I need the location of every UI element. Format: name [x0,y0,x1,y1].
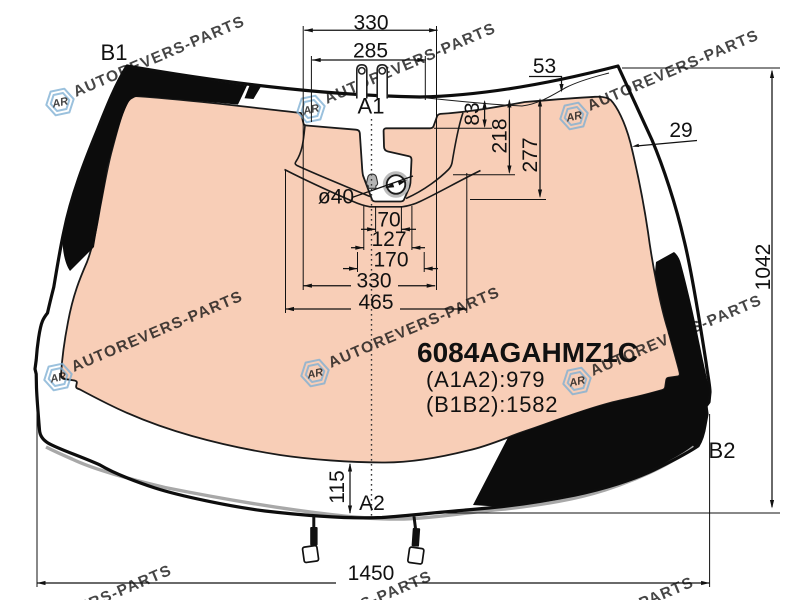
svg-text:465: 465 [358,291,393,314]
svg-text:(B1B2):1582: (B1B2):1582 [426,392,558,417]
svg-text:A1: A1 [358,94,385,119]
svg-text:1042: 1042 [752,244,775,291]
svg-text:83: 83 [461,102,484,125]
svg-text:53: 53 [533,55,556,78]
svg-text:170: 170 [373,249,408,272]
svg-text:A2: A2 [359,492,385,515]
svg-text:1450: 1450 [348,562,395,585]
svg-text:(A1A2):979: (A1A2):979 [426,367,545,392]
svg-text:277: 277 [519,137,542,172]
svg-text:29: 29 [669,119,692,142]
svg-text:218: 218 [489,118,512,153]
svg-text:ø40: ø40 [318,186,354,209]
svg-text:330: 330 [356,270,391,293]
svg-text:330: 330 [353,12,388,35]
svg-text:B1: B1 [101,40,128,65]
svg-text:115: 115 [326,470,349,503]
svg-text:B2: B2 [709,438,736,463]
svg-text:285: 285 [353,40,388,63]
svg-text:6084AGAHMZ1C: 6084AGAHMZ1C [417,337,638,368]
